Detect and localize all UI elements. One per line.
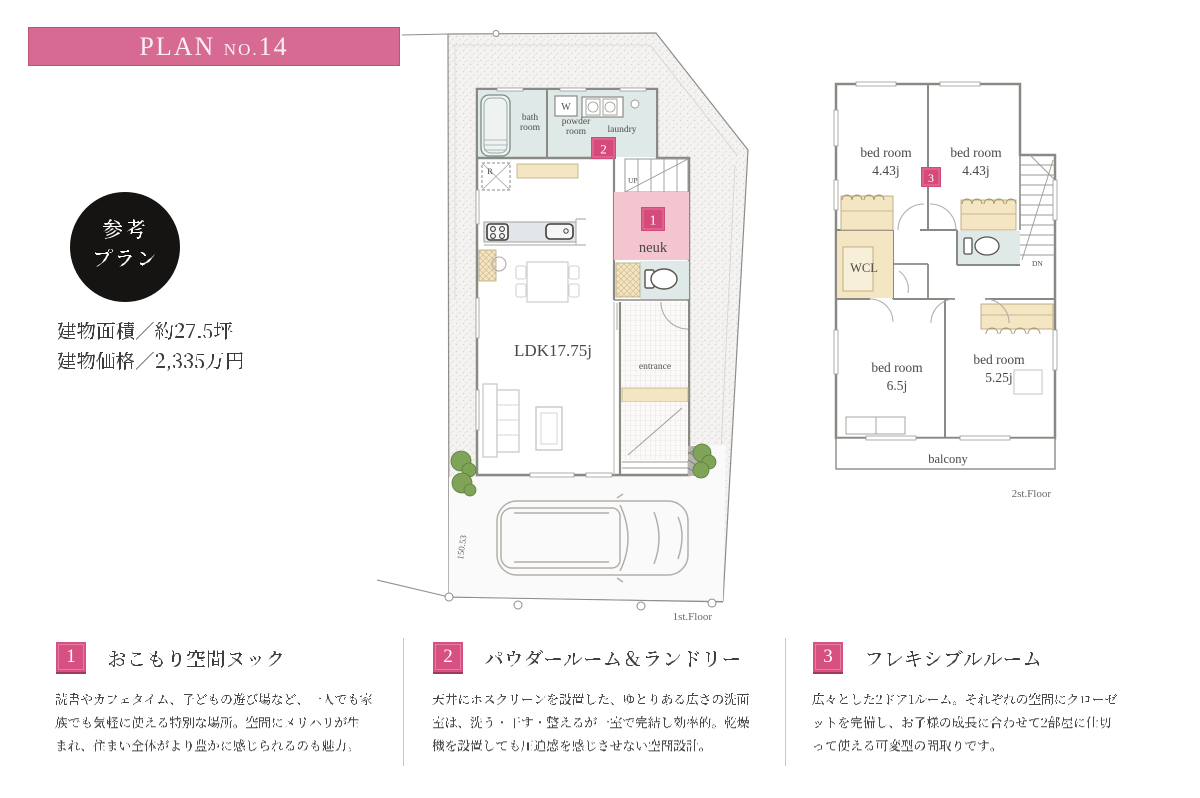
svg-text:bath: bath [522, 113, 539, 123]
svg-text:W: W [561, 102, 571, 113]
svg-text:2st.Floor: 2st.Floor [1012, 488, 1052, 500]
svg-text:powder: powder [562, 117, 591, 127]
svg-text:bed room: bed room [973, 352, 1025, 367]
svg-text:bed room: bed room [950, 145, 1002, 160]
svg-text:3: 3 [928, 171, 934, 185]
svg-text:balcony: balcony [928, 452, 968, 466]
svg-text:UP: UP [628, 176, 638, 185]
svg-text:LDK17.75j: LDK17.75j [514, 341, 592, 360]
svg-text:WCL: WCL [850, 261, 878, 275]
svg-text:5.25j: 5.25j [985, 370, 1012, 385]
svg-text:DN: DN [1032, 259, 1043, 268]
svg-text:1: 1 [650, 214, 657, 229]
svg-text:6.5j: 6.5j [887, 378, 908, 393]
svg-text:4.43j: 4.43j [872, 163, 899, 178]
svg-text:2: 2 [600, 142, 607, 157]
svg-text:bed room: bed room [871, 360, 923, 375]
svg-text:neuk: neuk [639, 240, 668, 256]
svg-text:room: room [520, 123, 541, 133]
svg-text:room: room [566, 127, 587, 137]
svg-text:R: R [487, 166, 493, 176]
svg-text:4.43j: 4.43j [962, 163, 989, 178]
svg-text:bed room: bed room [860, 145, 912, 160]
svg-text:1st.Floor: 1st.Floor [673, 611, 713, 623]
svg-text:entrance: entrance [639, 362, 671, 372]
svg-text:laundry: laundry [607, 125, 636, 135]
